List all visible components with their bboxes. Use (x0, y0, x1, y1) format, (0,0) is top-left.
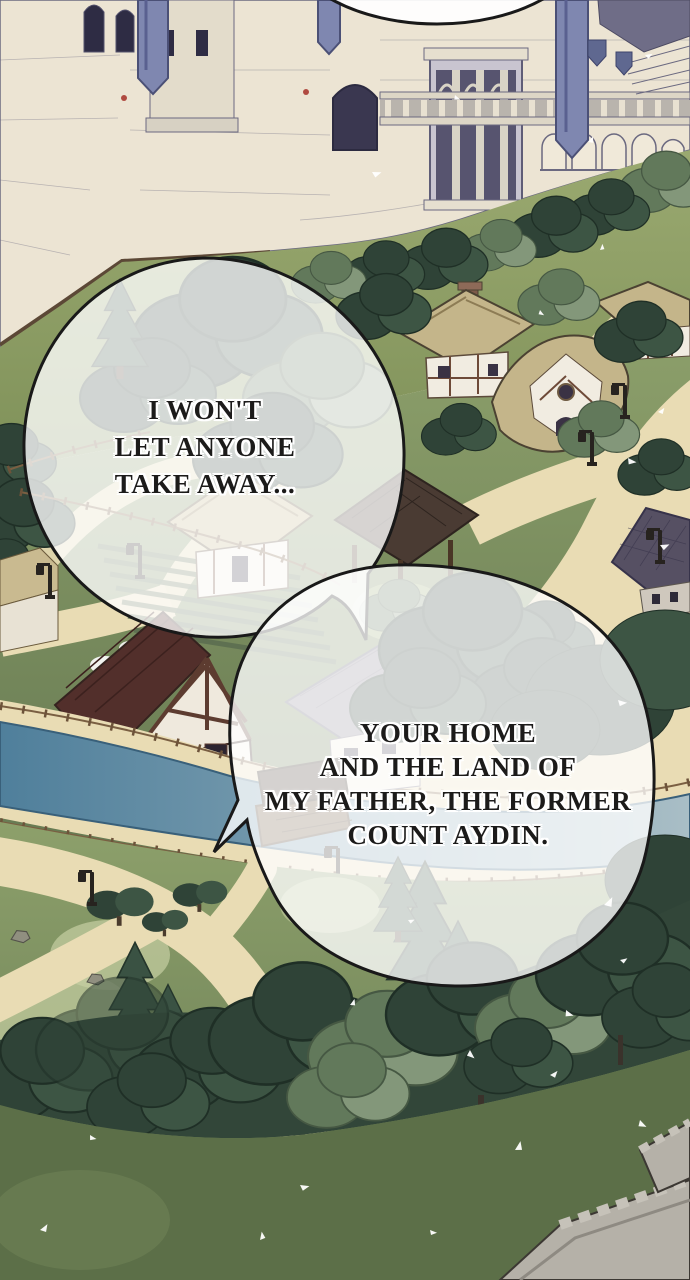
dialogue-line: LET ANYONE (55, 429, 355, 466)
dialogue-line: TAKE AWAY... (55, 466, 355, 503)
dialogue-line: COUNT AYDIN. (248, 818, 648, 852)
scene-illustration (0, 0, 690, 1280)
speech-bubble-2-text: YOUR HOME AND THE LAND OF MY FATHER, THE… (248, 716, 648, 852)
dialogue-line: MY FATHER, THE FORMER (248, 784, 648, 818)
speech-bubble-1-text: I WON'T LET ANYONE TAKE AWAY... (55, 392, 355, 503)
dialogue-line: I WON'T (55, 392, 355, 429)
webtoon-panel: I WON'T LET ANYONE TAKE AWAY... YOUR HOM… (0, 0, 690, 1280)
dialogue-line: AND THE LAND OF (248, 750, 648, 784)
dialogue-line: YOUR HOME (248, 716, 648, 750)
